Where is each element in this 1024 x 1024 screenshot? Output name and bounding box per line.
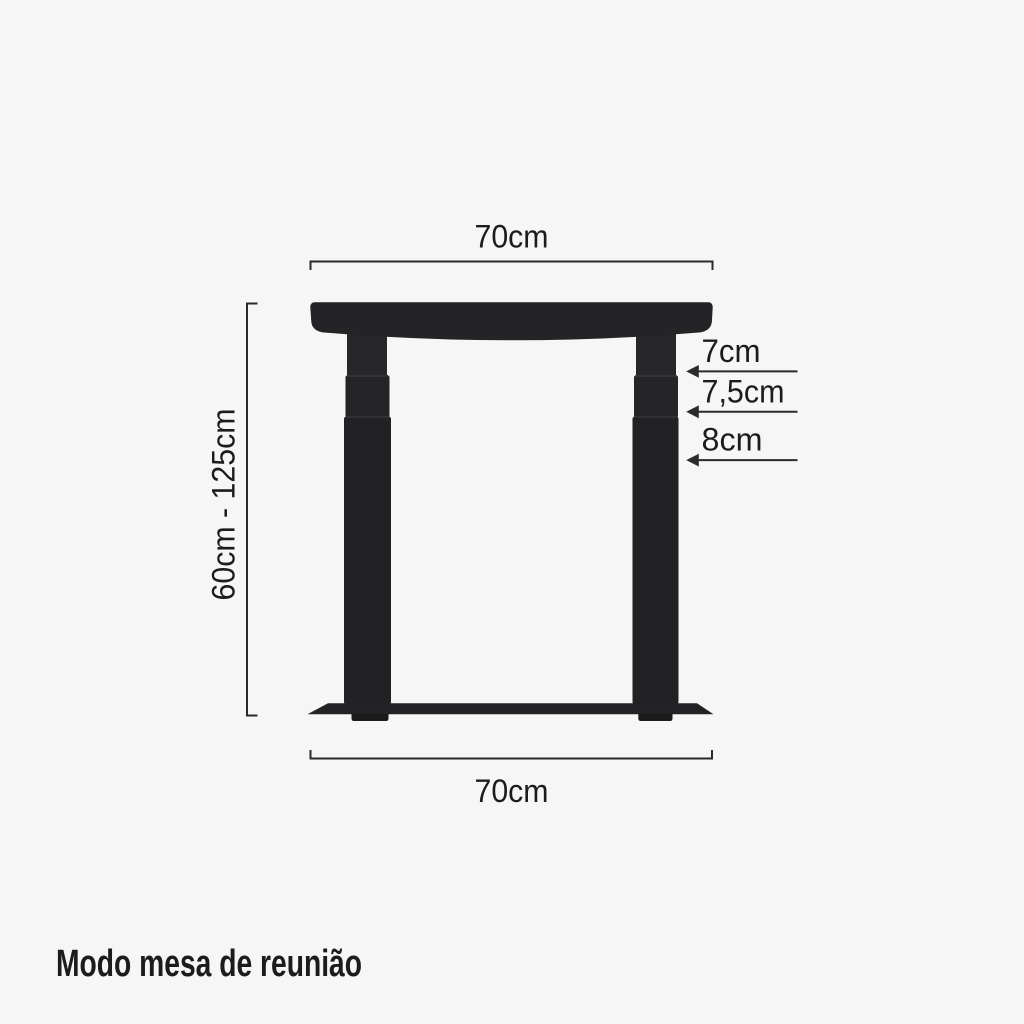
- svg-text:Modo mesa de reunião: Modo mesa de reunião: [56, 943, 362, 985]
- svg-text:7,5cm: 7,5cm: [702, 374, 785, 410]
- svg-text:60cm - 125cm: 60cm - 125cm: [206, 409, 242, 601]
- svg-text:8cm: 8cm: [702, 422, 763, 458]
- svg-text:7cm: 7cm: [702, 333, 761, 369]
- svg-text:70cm: 70cm: [475, 219, 549, 255]
- svg-text:70cm: 70cm: [475, 773, 549, 809]
